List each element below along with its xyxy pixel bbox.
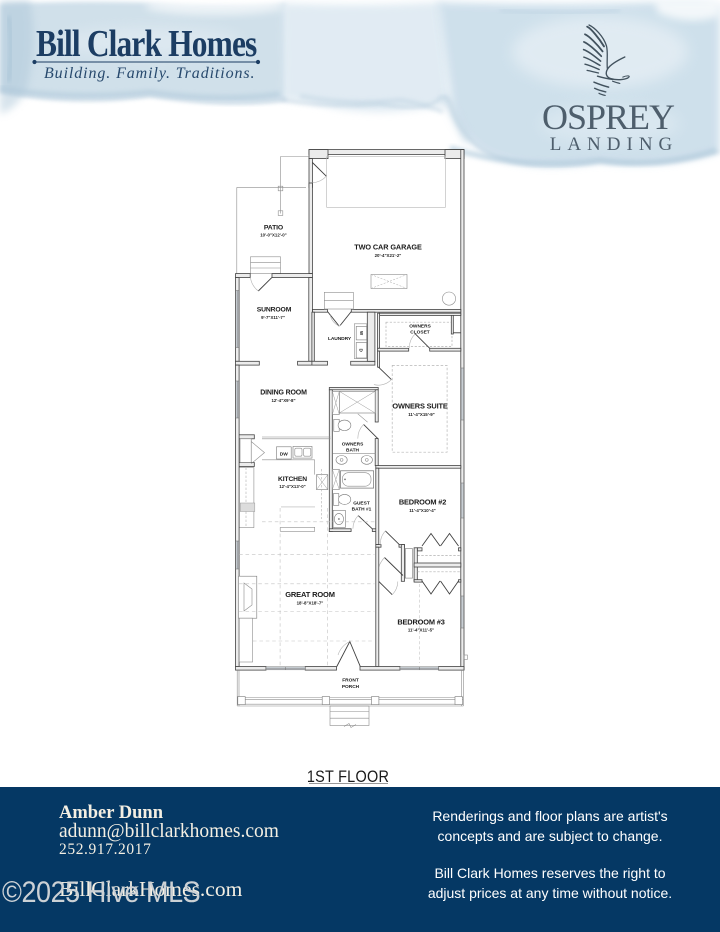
svg-text:18'-8"X18'-7": 18'-8"X18'-7": [297, 601, 324, 606]
svg-text:11'-4"X11'-5": 11'-4"X11'-5": [408, 628, 434, 633]
svg-text:DW: DW: [280, 452, 288, 458]
svg-text:BEDROOM #2: BEDROOM #2: [399, 498, 446, 507]
svg-text:GUEST: GUEST: [353, 501, 370, 507]
svg-text:DINING ROOM: DINING ROOM: [260, 390, 307, 397]
svg-text:CLOSET: CLOSET: [410, 329, 430, 335]
svg-text:KITCHEN: KITCHEN: [278, 476, 307, 483]
svg-text:PATIO: PATIO: [264, 225, 283, 232]
svg-text:20'-4"X21'-2": 20'-4"X21'-2": [375, 253, 402, 258]
svg-text:12'-4"X9'-8": 12'-4"X9'-8": [271, 398, 295, 403]
svg-text:11'-4"X15'-9": 11'-4"X15'-9": [408, 412, 435, 417]
svg-text:BATH: BATH: [346, 448, 360, 454]
svg-text:LAUNDRY: LAUNDRY: [328, 336, 352, 342]
svg-text:OWNERS: OWNERS: [409, 324, 431, 330]
svg-text:OWNERS SUITE: OWNERS SUITE: [392, 402, 447, 411]
svg-text:SUNROOM: SUNROOM: [257, 307, 292, 314]
svg-text:BATH #1: BATH #1: [352, 507, 372, 513]
svg-text:D: D: [359, 349, 364, 352]
svg-text:11'-4"X10'-4": 11'-4"X10'-4": [409, 508, 436, 513]
svg-text:OWNERS: OWNERS: [342, 442, 364, 448]
svg-text:FRONT: FRONT: [342, 678, 359, 684]
svg-text:PORCH: PORCH: [342, 684, 360, 690]
svg-text:10'-0"X12'-0": 10'-0"X12'-0": [260, 233, 286, 238]
svg-text:12'-4"X13'-0": 12'-4"X13'-0": [279, 484, 305, 489]
svg-text:GREAT ROOM: GREAT ROOM: [285, 590, 335, 599]
svg-text:BEDROOM #3: BEDROOM #3: [397, 618, 444, 627]
svg-text:TWO CAR GARAGE: TWO CAR GARAGE: [354, 243, 422, 252]
svg-text:9'-7"X11'-7": 9'-7"X11'-7": [261, 315, 285, 320]
